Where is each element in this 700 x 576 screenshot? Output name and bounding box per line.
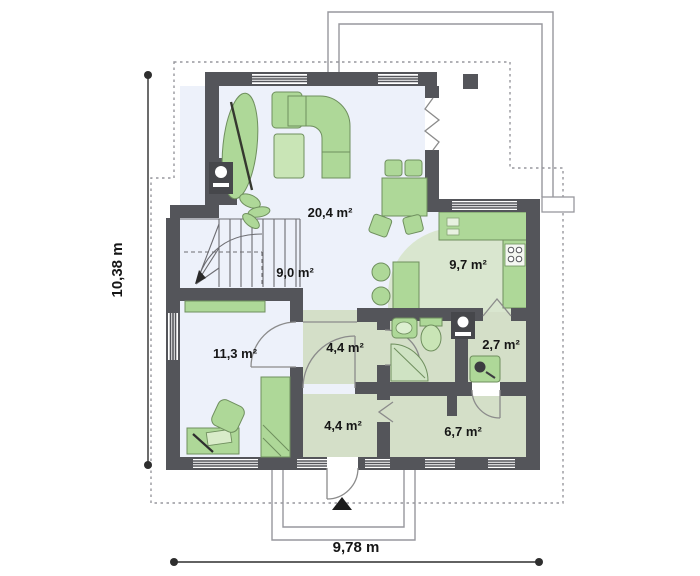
entrance-door-gap xyxy=(327,457,358,470)
closet-icon xyxy=(185,301,265,312)
room-area-label-vestibule: 4,4 m² xyxy=(324,418,362,433)
chimney-icon xyxy=(463,74,478,89)
room-area-label-living: 20,4 m² xyxy=(308,205,353,220)
floor-plan-drawing: 20,4 m² 9,0 m² 9,7 m² 11,3 m² 4,4 m² 2,7… xyxy=(0,0,700,576)
entrance-door-arc xyxy=(327,468,358,499)
chair-icon xyxy=(402,214,424,235)
window xyxy=(297,459,327,468)
boiler-icon xyxy=(470,356,500,382)
chair-icon xyxy=(385,160,402,176)
dimension-width-label: 9,78 m xyxy=(333,539,380,556)
partition-stub xyxy=(447,396,457,416)
room-area-label-corridor: 4,4 m² xyxy=(326,340,364,355)
dimension-height-label: 10,38 m xyxy=(109,242,126,297)
chair-icon xyxy=(405,160,422,176)
window xyxy=(488,459,515,468)
room-area-label-hall: 9,0 m² xyxy=(276,265,314,280)
window xyxy=(425,459,455,468)
window xyxy=(168,313,178,360)
window xyxy=(365,459,390,468)
room-area-label-tech: 2,7 m² xyxy=(482,337,520,352)
hob-icon xyxy=(505,244,525,266)
room-area-label-bedroom: 11,3 m² xyxy=(213,346,258,361)
window xyxy=(452,201,517,210)
window xyxy=(193,459,258,468)
dimension-height xyxy=(144,71,152,469)
room-area-label-kitchen: 9,7 m² xyxy=(449,257,487,272)
washer-icon xyxy=(451,312,475,339)
sink-icon xyxy=(392,318,417,338)
wardrobe-icon xyxy=(261,377,290,457)
accordion-door-icon xyxy=(425,98,439,150)
kitchen-peninsula xyxy=(393,262,419,312)
room-area-label-utility: 6,7 m² xyxy=(444,424,482,439)
window xyxy=(252,74,307,84)
bar-stool-icon xyxy=(372,287,390,305)
coffee-table-icon xyxy=(274,134,304,178)
floor-plan: 20,4 m² 9,0 m² 9,7 m² 11,3 m² 4,4 m² 2,7… xyxy=(0,0,700,576)
window xyxy=(378,74,418,84)
toilet-icon xyxy=(420,318,442,351)
dimension-width xyxy=(170,558,543,566)
wall-vent-stub xyxy=(542,197,574,212)
fireplace-icon xyxy=(209,162,233,194)
dining-table-icon xyxy=(382,178,427,216)
bar-stool-icon xyxy=(372,263,390,281)
kitchen-sink xyxy=(447,218,459,226)
